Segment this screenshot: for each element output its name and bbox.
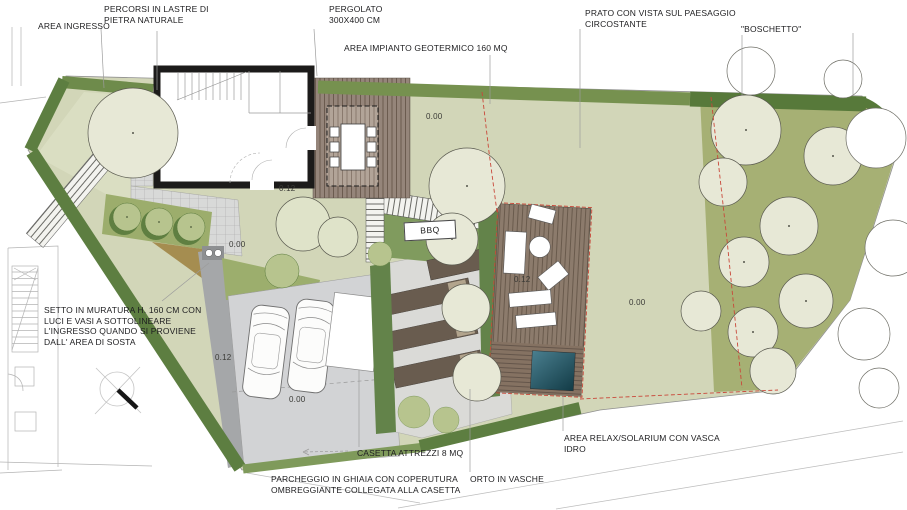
dining-table	[341, 124, 365, 170]
vase-pot	[206, 250, 213, 257]
elevation-marker: 0.00	[229, 240, 245, 249]
label-orto: ORTO IN VASCHE	[470, 474, 544, 485]
label-relax: AREA RELAX/SOLARIUM CON VASCA IDRO	[564, 433, 720, 454]
sun-lounger	[503, 231, 526, 274]
label-setto: SETTO IN MURATURA H. 160 CM CON LUCI E V…	[44, 305, 201, 348]
label-boschetto: "BOSCHETTO"	[741, 24, 801, 35]
elevation-marker: 0.12	[514, 275, 530, 284]
elevation-marker: 0.00	[629, 298, 645, 307]
hot-tub	[530, 351, 575, 391]
label-prato: PRATO CON VISTA SUL PAESAGGIO CIRCOSTANT…	[585, 8, 736, 29]
label-area-ingresso: AREA INGRESSO	[38, 21, 110, 32]
site-plan: AREA INGRESSO PERCORSI IN LASTRE DI PIET…	[0, 0, 907, 510]
elevation-marker: 0.12	[279, 184, 295, 193]
elevation-marker: 0.00	[426, 112, 442, 121]
vase-pot	[215, 250, 222, 257]
label-pergolato: PERGOLATO 300X400 CM	[329, 4, 382, 25]
label-parcheggio: PARCHEGGIO IN GHIAIA CON COPERUTURA OMBR…	[271, 474, 460, 495]
elevation-marker: 0.00	[289, 395, 305, 404]
elevation-marker: 0.12	[215, 353, 231, 362]
north-arrow	[95, 367, 141, 414]
label-percorsi: PERCORSI IN LASTRE DI PIETRA NATURALE	[104, 4, 209, 25]
plan-drawing	[0, 0, 907, 510]
relax-deck	[488, 202, 592, 397]
shrub	[398, 396, 430, 428]
label-casetta: CASETTA ATTREZZI 8 MQ	[357, 448, 463, 459]
shrub	[368, 242, 392, 266]
bbq-label: BBQ	[404, 220, 457, 242]
shrub	[433, 407, 459, 433]
label-impianto-geotermico: AREA IMPIANTO GEOTERMICO 160 MQ	[344, 43, 508, 54]
